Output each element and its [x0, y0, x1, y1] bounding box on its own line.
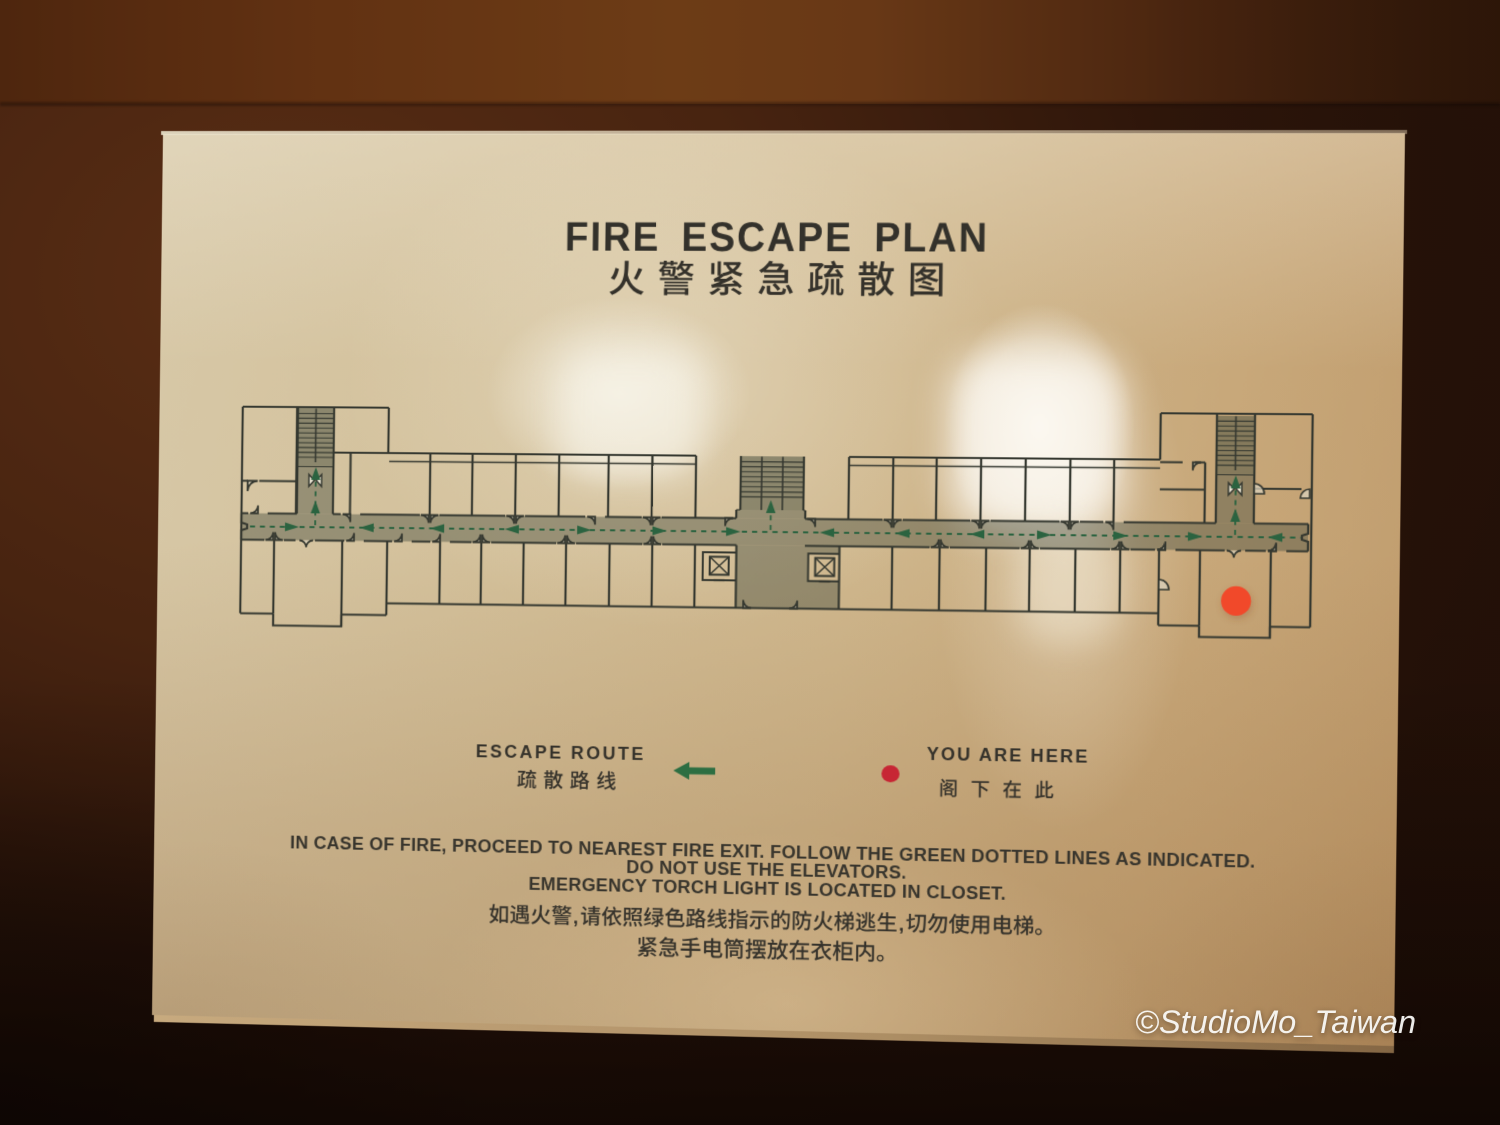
svg-text:,: ,	[899, 913, 905, 935]
svg-text:,: ,	[573, 906, 579, 928]
